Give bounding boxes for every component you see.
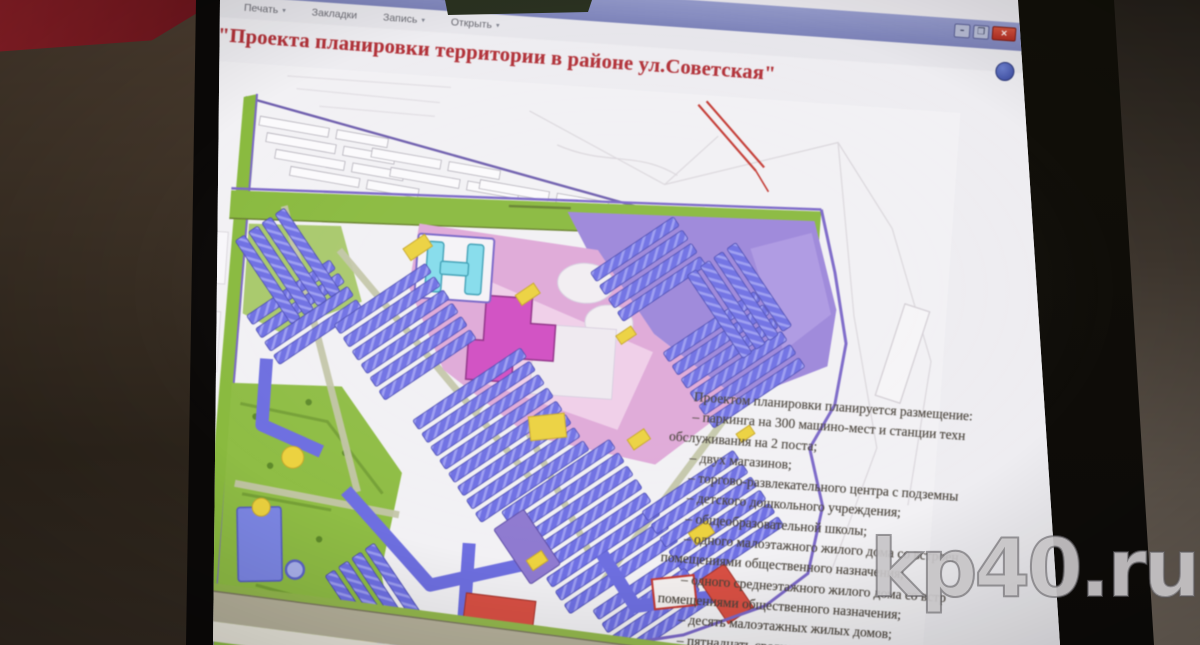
dropdown-arrow-icon: ▾: [421, 16, 425, 24]
close-button[interactable]: ×: [992, 26, 1017, 42]
round-structure: [285, 560, 304, 579]
pond: [237, 507, 282, 582]
dropdown-arrow-icon: ▾: [496, 21, 500, 29]
photo-of-projected-screen: – ❐ × Печать▾ЗакладкиЗапись▾Открыть▾ "Пр…: [0, 0, 1200, 645]
minimize-button[interactable]: –: [954, 23, 971, 38]
menu-item[interactable]: Открыть▾: [450, 16, 499, 31]
menu-item[interactable]: Закладки: [311, 7, 357, 22]
dropdown-arrow-icon: ▾: [282, 6, 286, 14]
room-wall-left: [0, 0, 198, 645]
window-controls: – ❐ ×: [954, 23, 1017, 41]
menu-item[interactable]: Печать▾: [244, 2, 287, 17]
watermark: kp40.ru: [870, 522, 1198, 615]
menu-item[interactable]: Запись▾: [383, 11, 426, 26]
maximize-button[interactable]: ❐: [973, 25, 990, 40]
